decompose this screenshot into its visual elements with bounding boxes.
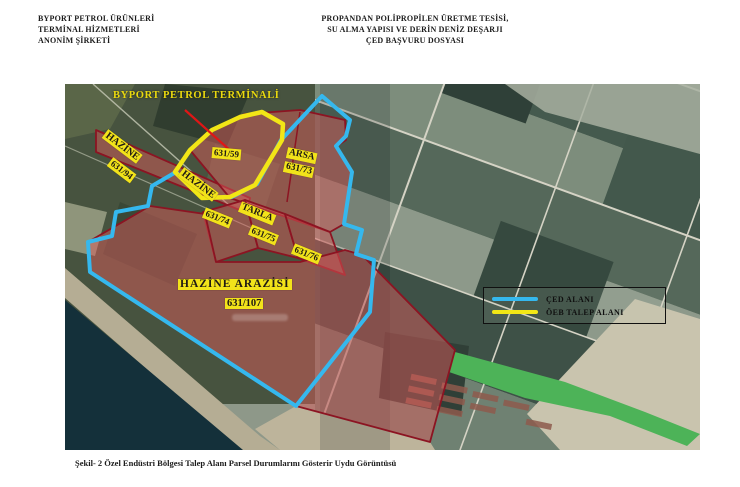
figure-caption: Şekil- 2 Özel Endüstri Bölgesi Talep Ala… [75,458,396,468]
legend-row-oeb: ÖEB TALEP ALANI [492,308,657,317]
ced-line-swatch [492,297,538,301]
faint-map-text [232,314,288,321]
terminal-callout-label: BYPORT PETROL TERMİNALİ [113,90,280,101]
project-header-line: PROPANDAN POLİPROPİLEN ÜRETME TESİSİ, [300,13,530,24]
company-header-line: BYPORT PETROL ÜRÜNLERİ [38,13,154,24]
oeb-line-swatch [492,310,538,314]
parcel-label-107: 631/107 [225,298,263,309]
map-legend: ÇED ALANI ÖEB TALEP ALANI [483,287,666,324]
company-header: BYPORT PETROL ÜRÜNLERİ TERMİNAL HİZMETLE… [38,13,154,46]
project-header: PROPANDAN POLİPROPİLEN ÜRETME TESİSİ, SU… [300,13,530,46]
project-header-line: ÇED BAŞVURU DOSYASI [300,35,530,46]
project-header-line: SU ALMA YAPISI VE DERİN DENİZ DEŞARJI [300,24,530,35]
company-header-line: ANONİM ŞİRKETİ [38,35,154,46]
legend-row-ced: ÇED ALANI [492,295,657,304]
legend-label-ced: ÇED ALANI [546,295,594,304]
satellite-map-graphic [65,84,700,450]
company-header-line: TERMİNAL HİZMETLERİ [38,24,154,35]
legend-label-oeb: ÖEB TALEP ALANI [546,308,624,317]
satellite-map: BYPORT PETROL TERMİNALİ HAZİNE 631/94 HA… [65,84,700,450]
parcel-label-hazine-arazisi: HAZİNE ARAZİSİ [178,279,292,290]
